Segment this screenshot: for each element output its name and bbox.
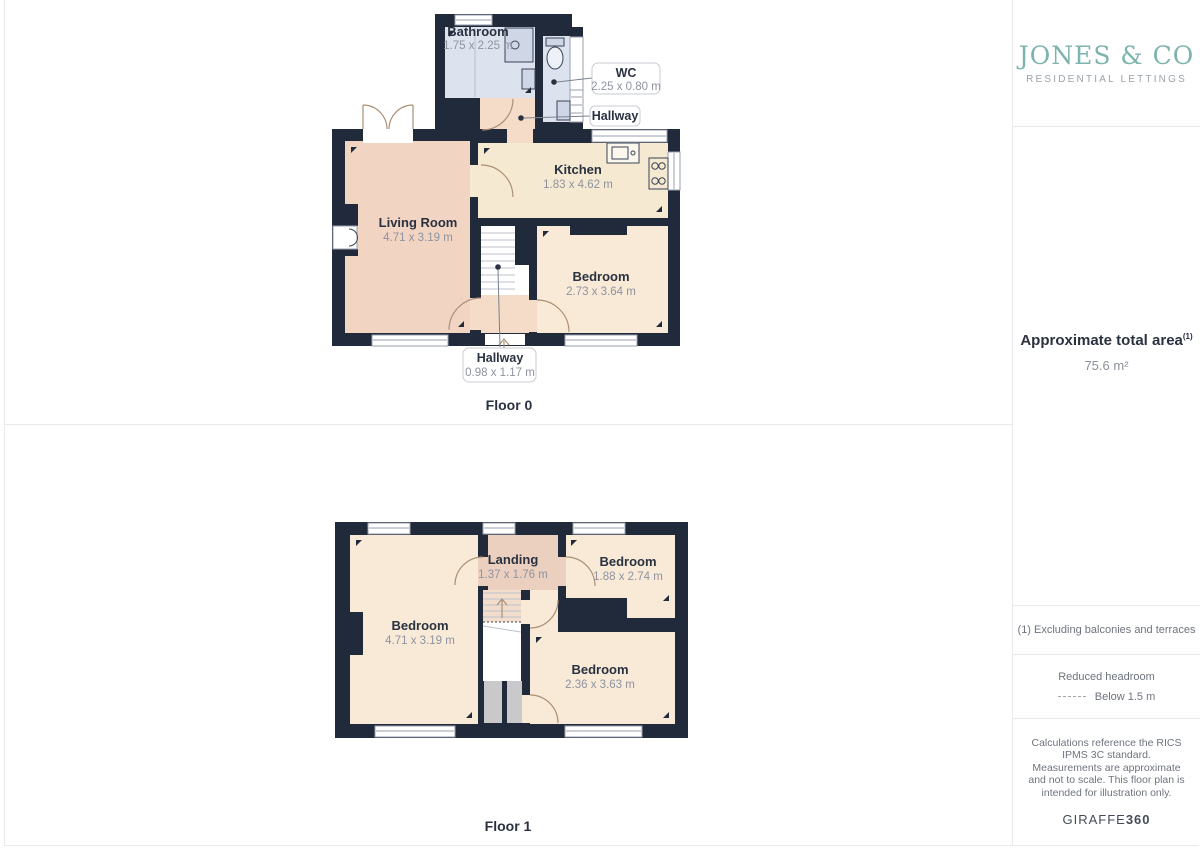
window (565, 335, 637, 346)
wc-dims: 2.25 x 0.80 m (591, 81, 661, 93)
hallway-top-callout-dot (518, 115, 524, 121)
kitchen-sink-icon (607, 143, 639, 163)
total-area-superscript: (1) (1183, 332, 1193, 341)
bedroom-bottomright-dims: 2.36 x 3.63 m (565, 679, 635, 691)
french-door-opening (363, 129, 413, 143)
hallway-top-label: Hallway (592, 109, 639, 123)
hallway-bottom-label-box: Hallway 0.98 x 1.17 m (463, 348, 536, 382)
window (368, 523, 410, 534)
footnote-text: (1) Excluding balconies and terraces (1018, 624, 1196, 636)
wc-label-box: WC 2.25 x 0.80 m (591, 63, 661, 94)
bedroom-left-dims: 4.71 x 3.19 m (385, 635, 455, 647)
disclaimer-text: Calculations reference the RICS IPMS 3C … (1028, 737, 1186, 800)
bathroom-label: Bathroom (447, 24, 508, 39)
dashed-line-icon (1058, 696, 1086, 697)
hallway-top-area (480, 98, 535, 129)
bedroom-bottomright-label: Bedroom (571, 662, 628, 677)
floorplan-page: Bathroom 1.75 x 2.25 m WC 2.25 x 0.80 m … (0, 0, 1200, 849)
hallway-bottom-dims: 0.98 x 1.17 m (465, 367, 535, 379)
toilet-icon (546, 38, 564, 69)
wc-label: WC (616, 66, 637, 80)
total-area-title: Approximate total area(1) (1020, 332, 1192, 349)
reduced-headroom-row: Below 1.5 m (1058, 691, 1156, 703)
window (565, 726, 642, 737)
panel-bottom-border (4, 845, 1199, 846)
floor-panels-divider (4, 424, 1012, 425)
window (375, 726, 455, 737)
window (668, 152, 680, 190)
kitchen-dims: 1.83 x 4.62 m (543, 179, 613, 191)
brand-tagline: RESIDENTIAL LETTINGS (1026, 74, 1187, 85)
floor1-title: Floor 1 (485, 818, 532, 834)
bedroom-floor0-label: Bedroom (572, 269, 629, 284)
total-area-section: Approximate total area(1) 75.6 m² (1013, 126, 1200, 605)
hallway-top-label-box: Hallway (590, 106, 640, 126)
closet (507, 681, 522, 723)
floor0-plan: Bathroom 1.75 x 2.25 m WC 2.25 x 0.80 m … (332, 14, 680, 413)
giraffe360-logo: GIRAFFE360 (1062, 812, 1150, 827)
window (572, 14, 583, 27)
floor1-plan: Landing 1.37 x 1.76 m Bedroom 1.88 x 2.7… (335, 522, 688, 834)
hallway-bottom-callout-dot (495, 264, 501, 270)
brand-name: JONES & CO (1019, 41, 1195, 70)
bedroom-topright-label: Bedroom (599, 554, 656, 569)
hallway-bottom-label: Hallway (477, 351, 524, 365)
footnote-section: (1) Excluding balconies and terraces (1013, 605, 1200, 654)
kitchen-label: Kitchen (554, 162, 602, 177)
closet (484, 681, 502, 723)
giraffe360-name: GIRAFFE (1062, 812, 1125, 827)
reduced-headroom-section: Reduced headroom Below 1.5 m (1013, 654, 1200, 719)
window (592, 130, 667, 142)
living-room-label: Living Room (379, 215, 458, 230)
brand-logo: JONES & CO RESIDENTIAL LETTINGS (1013, 0, 1200, 126)
window (483, 523, 515, 534)
landing-dims: 1.37 x 1.76 m (478, 569, 548, 581)
disclaimer-section: Calculations reference the RICS IPMS 3C … (1013, 718, 1200, 845)
info-panel: JONES & CO RESIDENTIAL LETTINGS Approxim… (1012, 0, 1200, 845)
panel-left-border (4, 0, 5, 845)
bedroom-topright-dims: 1.88 x 2.74 m (593, 571, 663, 583)
giraffe360-suffix: 360 (1126, 812, 1151, 827)
bathroom-dims: 1.75 x 2.25 m (443, 40, 513, 52)
reduced-headroom-value: Below 1.5 m (1095, 691, 1156, 703)
sink-icon (522, 69, 535, 89)
window (333, 226, 358, 249)
total-area-value: 75.6 m² (1084, 358, 1128, 373)
window (372, 335, 448, 346)
wc-callout-dot (551, 79, 557, 85)
bedroom-left-label: Bedroom (391, 618, 448, 633)
hallway-bottom-area (481, 295, 529, 333)
reduced-headroom-title: Reduced headroom (1058, 671, 1155, 683)
floorplans-svg: Bathroom 1.75 x 2.25 m WC 2.25 x 0.80 m … (0, 0, 1012, 845)
french-doors (363, 105, 413, 129)
landing-label: Landing (488, 552, 539, 567)
floor0-title: Floor 0 (486, 397, 533, 413)
total-area-title-text: Approximate total area (1020, 332, 1183, 349)
window (573, 523, 625, 534)
bedroom-bottomright-area (530, 632, 675, 724)
bedroom-floor0-dims: 2.73 x 3.64 m (566, 286, 636, 298)
living-room-dims: 4.71 x 3.19 m (383, 232, 453, 244)
